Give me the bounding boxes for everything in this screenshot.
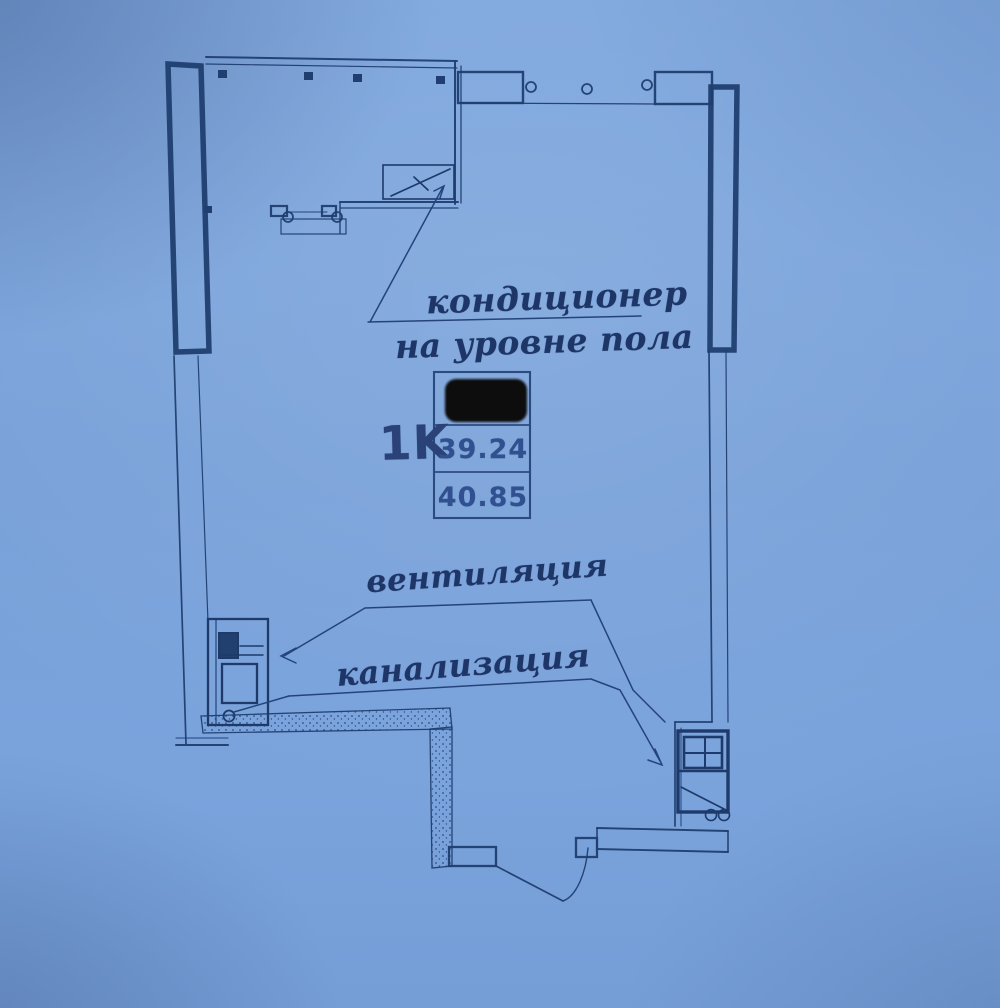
ac-unit-symbol [383,165,454,199]
door-jamb-right [576,838,597,857]
entrance-door [449,838,597,901]
top-right-opening [458,72,712,104]
vent-duct-block [219,633,238,658]
area-living-value: 39.24 [436,429,530,470]
window-unit-marks [271,206,346,234]
floor-plan-photo: кондиционер на уровне пола вентиляция ка… [0,0,1000,1008]
right-pilaster-wall [710,87,737,350]
redaction-box [445,379,527,422]
bottom-right-wall [597,828,728,852]
balcony-glazing [204,57,457,213]
left-pilaster-wall [168,64,209,352]
left-wall [174,356,228,745]
step-wall [340,61,461,233]
door-jamb-left [449,847,496,866]
bathroom-fixture [208,619,268,725]
area-total-value: 40.85 [436,477,530,517]
bottom-hatched-wall [201,708,452,868]
utility-shaft [678,731,730,821]
sink-symbol [222,664,257,703]
door-leaf [496,866,563,901]
